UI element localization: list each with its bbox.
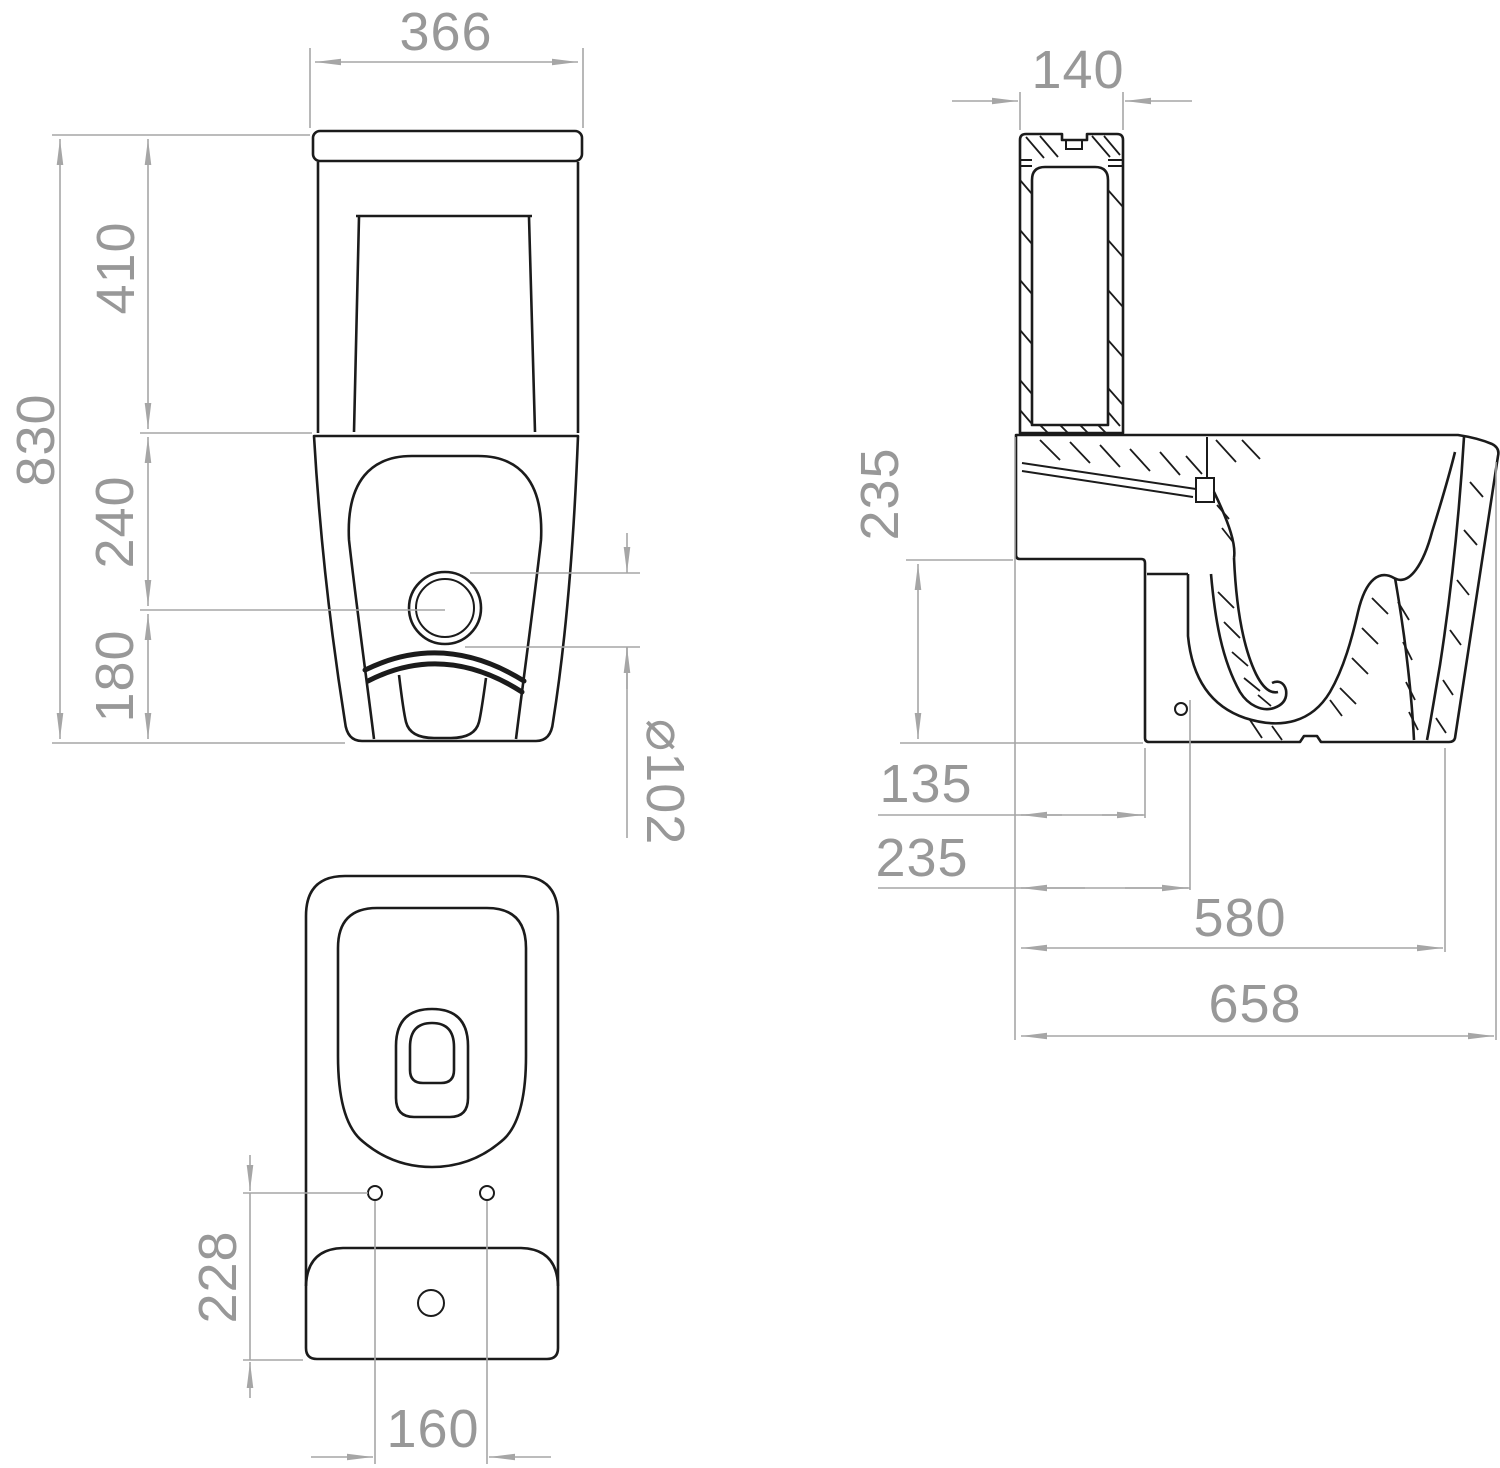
- dim-label-102: ⌀102: [635, 719, 695, 846]
- side-dimensions: 140 235 135 235: [850, 40, 1496, 1040]
- section-hatching: [1020, 136, 1483, 740]
- dim-outlet-from-cistern: 240: [85, 437, 445, 610]
- side-trap-wall-outer: [1211, 574, 1286, 709]
- dim-cistern-height: 410: [86, 139, 312, 433]
- dim-label-410: 410: [86, 221, 146, 314]
- dim-recess-height: 235: [850, 447, 1143, 743]
- dim-overall-height: 830: [6, 135, 345, 743]
- plan-rim-inner: [338, 908, 526, 1167]
- front-view: [313, 131, 582, 741]
- dim-label-580: 580: [1193, 888, 1286, 948]
- side-view: [1016, 134, 1498, 742]
- front-cistern-lid: [313, 131, 582, 161]
- front-sump: [399, 675, 486, 738]
- dim-label-180: 180: [85, 629, 145, 722]
- front-outlet-outer: [409, 572, 481, 644]
- dim-label-160: 160: [386, 1399, 479, 1459]
- plan-foot-edge: [306, 1248, 558, 1286]
- dim-label-135: 135: [879, 754, 972, 814]
- dim-label-140: 140: [1031, 40, 1124, 100]
- dim-label-830: 830: [6, 393, 66, 486]
- dim-label-658: 658: [1208, 974, 1301, 1034]
- technical-drawing-toilet: 366 830 410 240 180: [0, 0, 1500, 1468]
- dim-recess-depth: 135: [878, 748, 1145, 818]
- front-rim-arc-1: [365, 653, 524, 681]
- side-cistern-valve: [1066, 140, 1082, 149]
- side-trap-channel: [1188, 452, 1455, 723]
- dim-fixing-setback: 228: [188, 1155, 368, 1398]
- dim-label-235h: 235: [875, 828, 968, 888]
- side-cistern-cavity: [1032, 167, 1108, 425]
- plan-inlet-hole: [418, 1290, 444, 1316]
- side-seat-slab: [1022, 463, 1196, 497]
- plan-dimensions: 228 160: [188, 1155, 551, 1464]
- dim-front-width: 366: [310, 2, 583, 128]
- dim-label-240: 240: [85, 475, 145, 568]
- dim-label-228: 228: [188, 1230, 248, 1323]
- dim-bowl-depth: 580: [1021, 748, 1445, 952]
- dim-outlet-height: 180: [85, 614, 148, 739]
- drawing-svg: 366 830 410 240 180: [0, 0, 1500, 1468]
- front-dimensions: 366 830 410 240 180: [6, 2, 695, 845]
- side-seat-fixing: [1196, 478, 1214, 502]
- dim-fixing-spacing: 160: [311, 1201, 551, 1464]
- front-cistern-panel: [354, 216, 535, 432]
- plan-trap-outer: [396, 1009, 468, 1117]
- side-lid-joint: [1020, 160, 1123, 166]
- dim-label-235v: 235: [850, 447, 910, 540]
- side-fixing-hole: [1175, 703, 1187, 715]
- front-outlet-inner: [416, 579, 474, 637]
- plan-view: [306, 876, 558, 1359]
- dim-outlet-diameter: ⌀102: [465, 533, 695, 845]
- dim-cistern-depth: 140: [952, 40, 1192, 130]
- side-bowl-back: [1214, 492, 1234, 558]
- plan-seat-hole-left: [368, 1186, 382, 1200]
- plan-trap-inner: [410, 1023, 454, 1083]
- dim-overall-depth: 658: [1021, 462, 1496, 1040]
- plan-seat-hole-right: [480, 1186, 494, 1200]
- front-pan-inner: [349, 456, 541, 739]
- side-trap-wall-inner: [1234, 558, 1278, 692]
- dim-label-366: 366: [399, 2, 492, 62]
